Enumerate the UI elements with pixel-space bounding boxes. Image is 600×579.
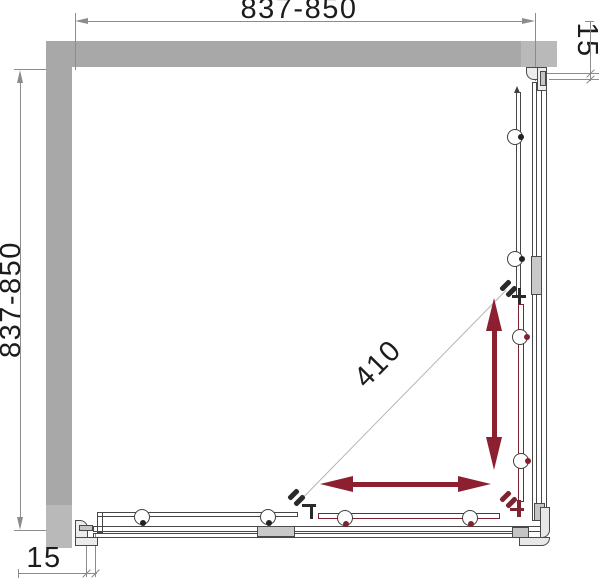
bottom-bracket-cap <box>79 525 93 531</box>
bottom-glass-holder <box>257 526 295 537</box>
left-dim-extension-bottom <box>14 530 46 531</box>
dim-arrow-left-icon <box>75 18 88 24</box>
bottom-wall-bracket-arm <box>75 537 98 546</box>
left-wall <box>46 41 72 548</box>
left-dimension-line <box>20 82 21 518</box>
roller-icon <box>507 251 523 267</box>
roller-icon <box>513 453 529 469</box>
bottom-fixed-panel-inner <box>93 526 542 532</box>
top-dimension-line <box>87 21 523 22</box>
roller-icon <box>512 329 528 345</box>
dim-arrow-down-icon <box>17 517 23 530</box>
roller-icon <box>134 509 150 525</box>
top-dim-extension-left <box>75 13 76 70</box>
diagonal-dimension-line <box>298 290 507 503</box>
top-wall <box>46 41 557 67</box>
corner-profile-foot <box>519 537 550 546</box>
right-fixed-panel-inner <box>532 82 538 521</box>
bottom-fixed-panel-outer <box>93 533 515 539</box>
drawing-canvas: 837-850 837-850 15 15 410 <box>0 0 600 579</box>
bottom-gap-dimension-label: 15 <box>14 546 74 570</box>
right-gap-dimension-label: 15 <box>575 10 599 70</box>
bottom-gap-leader-end <box>18 569 19 578</box>
roller-icon <box>260 509 276 525</box>
right-glass-holder <box>531 256 543 295</box>
roller-icon <box>337 510 353 526</box>
right-gap-leader-end <box>585 21 594 22</box>
roller-icon <box>462 510 478 526</box>
bottom-door-end-stile <box>97 512 103 533</box>
roller-icon <box>507 129 523 145</box>
dim-arrow-right-icon <box>522 18 535 24</box>
corner-profile <box>540 507 550 538</box>
right-panel-upper-glass <box>516 92 522 298</box>
dim-arrow-up-icon <box>17 70 23 83</box>
right-bracket-cap <box>540 71 546 86</box>
top-wall-end <box>521 41 557 67</box>
right-fixed-panel-outer <box>541 80 547 511</box>
left-dim-extension-top <box>14 69 46 70</box>
top-width-dimension-label: 837-850 <box>219 0 379 21</box>
